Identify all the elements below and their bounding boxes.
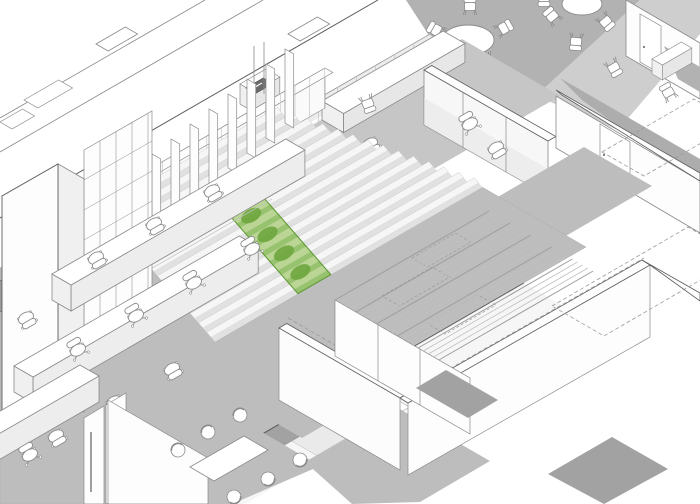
axonometric-floorplan-screenshot bbox=[0, 0, 700, 504]
side-chair bbox=[537, 0, 551, 7]
floorplan-drawing bbox=[0, 0, 700, 504]
